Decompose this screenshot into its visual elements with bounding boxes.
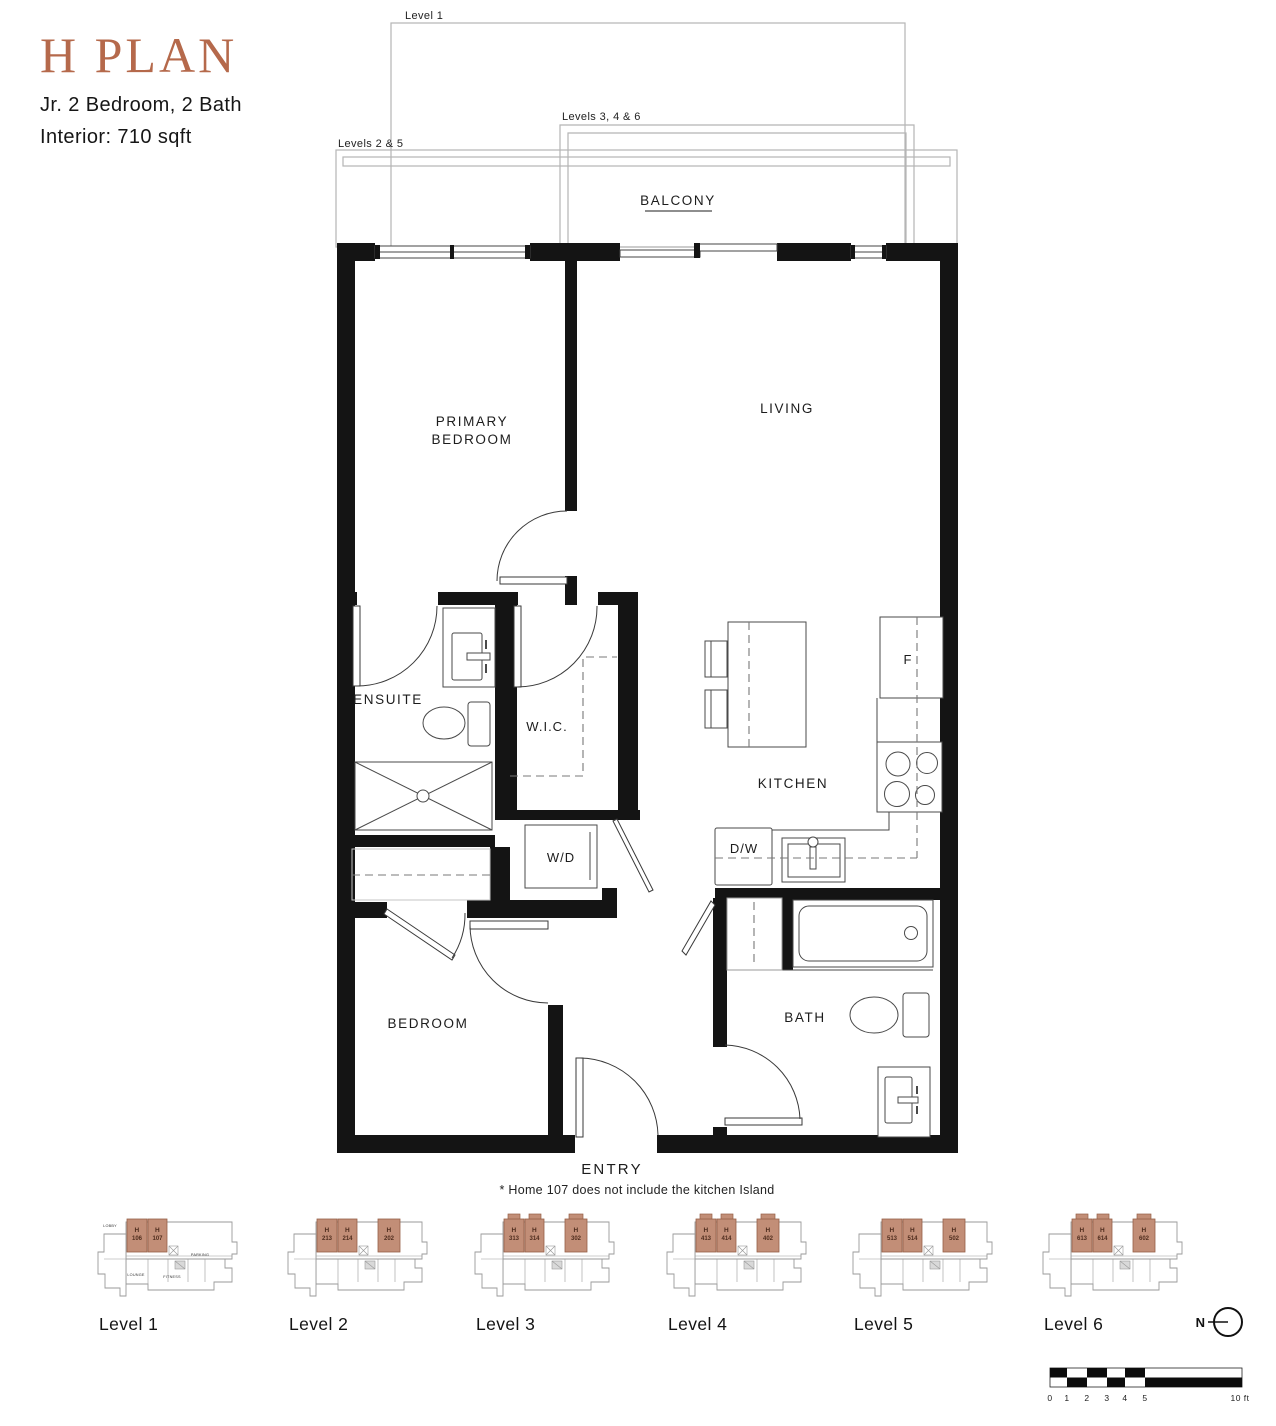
svg-text:Level 5: Level 5 [854, 1314, 913, 1334]
label-ensuite: ENSUITE [353, 692, 423, 707]
svg-text:414: 414 [721, 1236, 732, 1242]
svg-text:Level 2: Level 2 [289, 1314, 348, 1334]
bath-faucet [898, 1097, 918, 1103]
level-keyplans: H106H107LOBBYPARKINGLOUNGEFITNESSLevel 1… [98, 1214, 1182, 1334]
wic-closet-dash [510, 657, 617, 776]
hall-door-swing [470, 925, 548, 1003]
floorplan-page: H PLAN Jr. 2 Bedroom, 2 Bath Interior: 7… [0, 0, 1276, 1426]
svg-text:413: 413 [701, 1236, 712, 1242]
svg-text:H: H [890, 1227, 895, 1234]
svg-text:H: H [1080, 1227, 1085, 1234]
svg-text:402: 402 [763, 1236, 774, 1242]
label-fridge: F [904, 652, 913, 667]
svg-text:514: 514 [907, 1236, 918, 1242]
entry-door-leaf [576, 1058, 583, 1137]
svg-text:Level 4: Level 4 [668, 1314, 727, 1334]
wic-door-leaf [514, 606, 521, 687]
label-bath: BATH [784, 1010, 825, 1025]
bedroom-door-swing [452, 913, 465, 958]
scale-bar: 01234510 ft [1047, 1368, 1249, 1403]
svg-text:613: 613 [1077, 1236, 1088, 1242]
label-entry: ENTRY [581, 1161, 643, 1178]
svg-text:602: 602 [1139, 1236, 1150, 1242]
keyplan-level-5: H513H514H502Level 5 [853, 1219, 992, 1334]
ensuite-door-leaf [353, 606, 360, 686]
svg-text:H: H [155, 1227, 160, 1234]
svg-text:513: 513 [887, 1236, 898, 1242]
svg-text:LOBBY: LOBBY [103, 1224, 117, 1228]
balcony-levels25-railing [343, 157, 950, 166]
balcony-level1-outline [391, 23, 905, 247]
svg-text:PARKING: PARKING [191, 1253, 209, 1257]
kitchen-faucet [808, 837, 818, 847]
hall-door-leaf [470, 921, 548, 929]
keyplan-level-3: H313H314H302Level 3 [475, 1214, 614, 1334]
svg-text:H: H [135, 1227, 140, 1234]
svg-text:106: 106 [132, 1236, 143, 1242]
svg-text:H: H [724, 1227, 729, 1234]
svg-text:LOUNGE: LOUNGE [127, 1273, 145, 1277]
balcony-outlines [336, 23, 957, 247]
balcony-levels346-outer [560, 125, 914, 247]
svg-text:H: H [532, 1227, 537, 1234]
dishwasher [715, 828, 772, 885]
svg-text:H: H [512, 1227, 517, 1234]
floorplan-canvas: Level 1 Levels 3, 4 & 6 Levels 2 & 5 BAL… [0, 0, 1276, 1426]
bath-door-swing [725, 1045, 800, 1119]
label-wd: W/D [547, 850, 575, 865]
keyplan-level-2: H213H214H202Level 2 [288, 1219, 427, 1334]
ensuite-toilet-tank [468, 702, 490, 746]
svg-text:H: H [325, 1227, 330, 1234]
ensuite-door-swing [357, 606, 437, 686]
bath-door-leaf [725, 1118, 802, 1125]
svg-text:614: 614 [1097, 1236, 1108, 1242]
svg-text:5: 5 [1142, 1393, 1147, 1403]
svg-text:302: 302 [571, 1236, 582, 1242]
bath-toilet-tank [903, 993, 929, 1037]
compass: N [1196, 1308, 1242, 1336]
svg-text:H: H [704, 1227, 709, 1234]
svg-text:H: H [387, 1227, 392, 1234]
label-balcony-level1: Level 1 [405, 10, 443, 22]
label-primary-2: BEDROOM [432, 432, 513, 447]
keyplan-level-6: H613H614H602Level 6 [1043, 1214, 1182, 1334]
svg-text:202: 202 [384, 1236, 395, 1242]
svg-text:FITNESS: FITNESS [163, 1275, 181, 1279]
laundry-door-leaf [613, 819, 653, 892]
label-balcony-levels25: Levels 2 & 5 [338, 138, 403, 150]
label-living: LIVING [760, 401, 814, 416]
label-balcony-levels346: Levels 3, 4 & 6 [562, 111, 641, 123]
svg-text:314: 314 [529, 1236, 540, 1242]
footnote: * Home 107 does not include the kitchen … [499, 1183, 774, 1197]
svg-text:H: H [345, 1227, 350, 1234]
svg-text:214: 214 [342, 1236, 353, 1242]
primary-bedroom-door-swing [497, 511, 567, 581]
svg-text:H: H [574, 1227, 579, 1234]
sliding-door-panel-1 [620, 250, 700, 257]
label-dw: D/W [730, 841, 758, 856]
kitchen-island [728, 622, 806, 747]
svg-text:0: 0 [1047, 1393, 1052, 1403]
keyplan-level-4: H413H414H402Level 4 [667, 1214, 806, 1334]
keyplan-level-1: H106H107LOBBYPARKINGLOUNGEFITNESSLevel 1 [98, 1219, 237, 1334]
stool-1 [705, 641, 727, 677]
svg-text:213: 213 [322, 1236, 333, 1242]
ensuite-faucet [467, 653, 490, 660]
primary-bedroom-door-leaf [500, 577, 567, 584]
svg-text:H: H [766, 1227, 771, 1234]
svg-text:10 ft: 10 ft [1230, 1393, 1249, 1403]
bathtub-drain [905, 927, 918, 940]
svg-text:2: 2 [1084, 1393, 1089, 1403]
label-wic: W.I.C. [526, 719, 567, 734]
label-balcony: BALCONY [640, 193, 716, 208]
svg-text:107: 107 [152, 1236, 163, 1242]
svg-text:Level 3: Level 3 [476, 1314, 535, 1334]
sliding-door-panel-2 [697, 244, 777, 251]
svg-text:H: H [952, 1227, 957, 1234]
hall-closet-door-leaf [682, 901, 715, 955]
ensuite-toilet-bowl [423, 707, 465, 739]
north-label: N [1196, 1315, 1205, 1330]
shower-drain [417, 790, 429, 802]
bedroom-door-leaf [384, 909, 455, 960]
wic-door-swing [517, 606, 597, 687]
label-kitchen: KITCHEN [758, 776, 828, 791]
label-primary-1: PRIMARY [436, 414, 508, 429]
svg-text:H: H [1100, 1227, 1105, 1234]
counter-edge [772, 812, 889, 830]
stool-2 [705, 690, 727, 728]
svg-text:Level 6: Level 6 [1044, 1314, 1103, 1334]
svg-text:H: H [1142, 1227, 1147, 1234]
svg-text:H: H [910, 1227, 915, 1234]
svg-text:Level 1: Level 1 [99, 1314, 158, 1334]
fixtures [352, 608, 943, 1137]
svg-text:502: 502 [949, 1236, 960, 1242]
entry-door-swing [580, 1058, 658, 1135]
svg-text:1: 1 [1064, 1393, 1069, 1403]
bath-toilet-bowl [850, 997, 898, 1033]
svg-text:4: 4 [1122, 1393, 1127, 1403]
label-bedroom: BEDROOM [388, 1016, 469, 1031]
svg-text:3: 3 [1104, 1393, 1109, 1403]
svg-text:313: 313 [509, 1236, 520, 1242]
